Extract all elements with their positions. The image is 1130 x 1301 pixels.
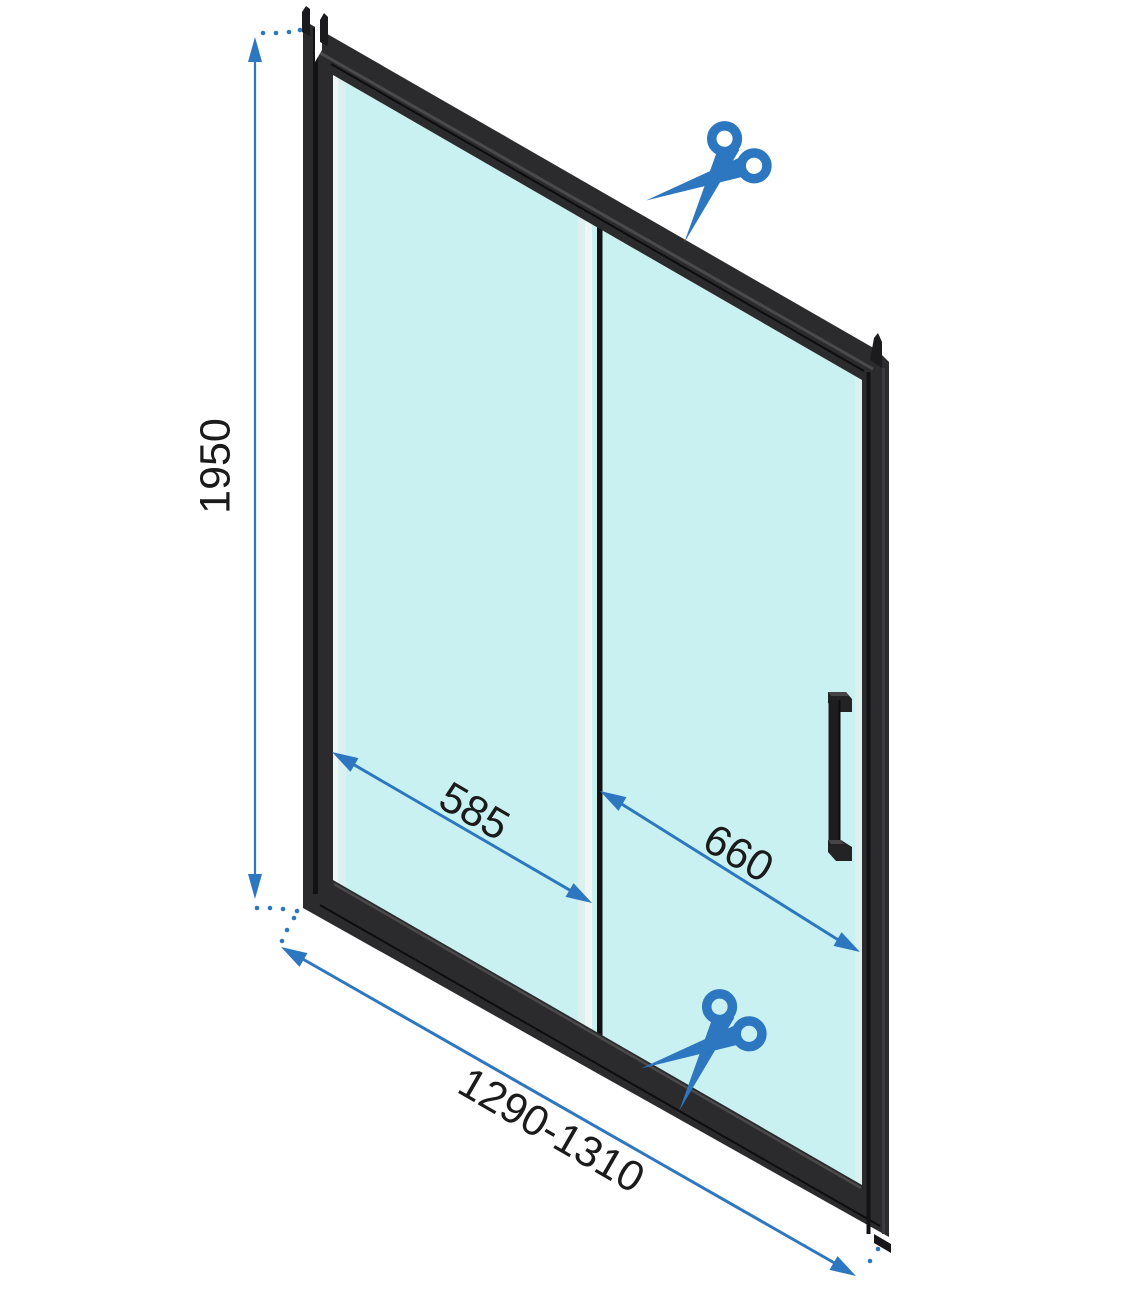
door-assembly <box>302 6 891 1253</box>
diagram-canvas: 1950 585 660 1290-1310 <box>0 0 1130 1301</box>
arrowhead-right <box>830 1256 857 1276</box>
leader-dots-right <box>868 1247 881 1264</box>
dimension-height-arrow <box>248 28 302 914</box>
handle-bar-edge <box>839 700 841 848</box>
divider-glass-edge <box>578 216 585 1027</box>
left-stile-shade <box>313 28 318 894</box>
leader-dots-bottom <box>255 906 300 914</box>
scissors-icon-top <box>642 118 772 245</box>
top-left-bracket <box>302 6 310 36</box>
arrowhead-down <box>248 874 262 899</box>
glass-panel-left <box>333 75 600 1034</box>
right-stile-highlight <box>882 368 885 1234</box>
panel-divider-seam <box>597 226 603 1036</box>
shower-door-diagram <box>0 0 1130 1301</box>
right-stile-shade <box>867 372 871 1234</box>
glass-edge-left <box>333 75 338 883</box>
leader-dots-top <box>261 28 303 36</box>
divider-glass-edge-light <box>585 220 592 1031</box>
arrowhead-left <box>281 947 308 967</box>
handle-top-foot-highlight <box>828 692 849 696</box>
dimension-height-label: 1950 <box>192 418 241 514</box>
top-left-bracket2 <box>320 13 328 46</box>
glass-edge-right <box>855 376 862 1185</box>
leader-dots-left <box>280 916 297 944</box>
arrowhead-up <box>248 37 262 62</box>
